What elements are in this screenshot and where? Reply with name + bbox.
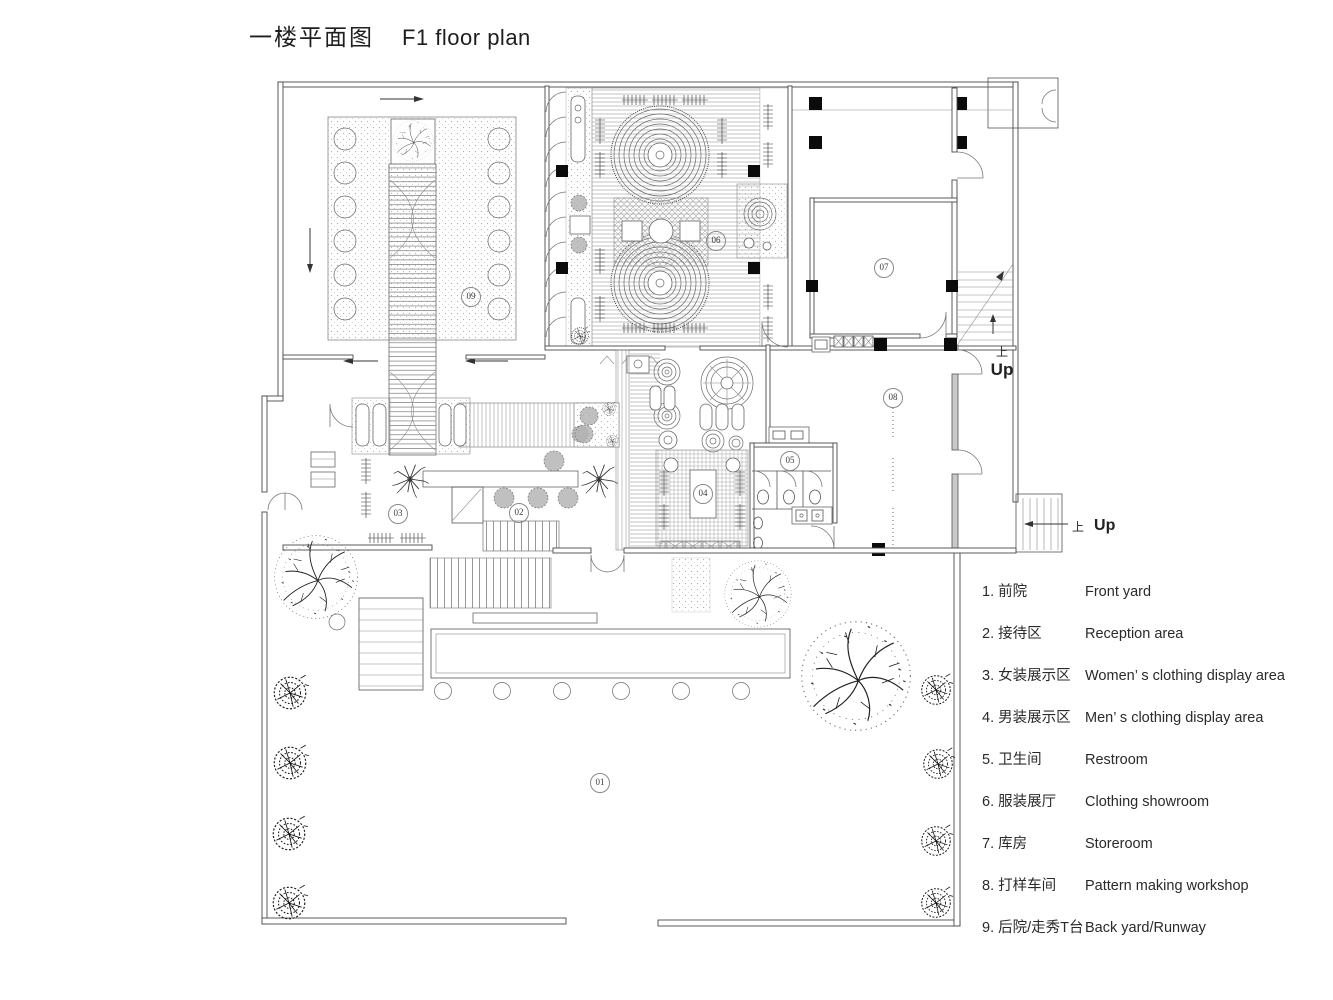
- room-marker-05: 05: [780, 451, 800, 471]
- stair-up-zh-1: 上: [991, 345, 1014, 359]
- legend-item-workshop: 8. 打样车间 Pattern making workshop: [982, 874, 1249, 895]
- stair-up-en-1: Up: [991, 359, 1014, 381]
- legend-item-mens-display: 4. 男装展示区 Men’ s clothing display area: [982, 706, 1263, 727]
- stair-up-en-2: Up: [1094, 517, 1115, 535]
- room-marker-02: 02: [509, 503, 529, 523]
- room-marker-07: 07: [874, 258, 894, 278]
- room-marker-06: 06: [706, 231, 726, 251]
- room-marker-09: 09: [461, 287, 481, 307]
- front-yard-area: [273, 536, 955, 919]
- room-marker-04: 04: [693, 484, 713, 504]
- room-marker-08: 08: [883, 388, 903, 408]
- staircase-upper: [958, 264, 1013, 344]
- legend-item-storeroom: 7. 库房 Storeroom: [982, 832, 1153, 853]
- room-marker-03: 03: [388, 504, 408, 524]
- page-title: 一楼平面图F1 floor plan: [249, 18, 531, 52]
- title-english: F1 floor plan: [402, 25, 531, 50]
- stair-up-zh-2: 上: [1072, 518, 1084, 535]
- trees: [273, 536, 955, 919]
- legend-item-backyard: 9. 后院/走秀T台 Back yard/Runway: [982, 916, 1206, 937]
- staircase-lower: [1016, 494, 1068, 552]
- restroom-area: [750, 427, 837, 549]
- title-chinese: 一楼平面图: [249, 24, 374, 50]
- floor-plan-page: .wall{fill:#fff;stroke:#4a4a4a;stroke-wi…: [0, 0, 1333, 1000]
- legend-item-restroom: 5. 卫生间 Restroom: [982, 748, 1148, 769]
- stair-up-label-2: 上 Up: [1072, 517, 1115, 535]
- mens-display-area: [627, 352, 753, 612]
- storeroom-area: [806, 88, 983, 352]
- legend-item-front-yard: 1. 前院 Front yard: [982, 580, 1151, 601]
- clothing-showroom-area: [545, 86, 1016, 364]
- legend-item-reception: 2. 接待区 Reception area: [982, 622, 1183, 643]
- backyard-runway-area: [283, 96, 545, 455]
- legend-item-womens-display: 3. 女装展示区 Women’ s clothing display area: [982, 664, 1285, 685]
- legend-item-showroom: 6. 服装展厅 Clothing showroom: [982, 790, 1209, 811]
- room-marker-01: 01: [590, 773, 610, 793]
- stair-up-label-1: 上 Up: [991, 345, 1014, 381]
